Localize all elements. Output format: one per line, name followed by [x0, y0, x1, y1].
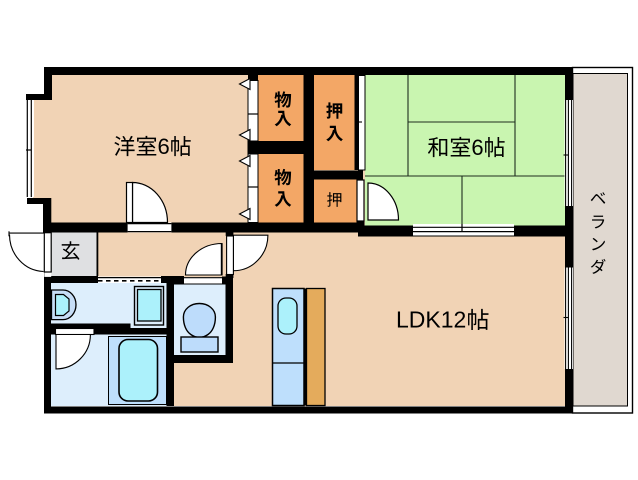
svg-text:6: 6 [158, 134, 170, 159]
svg-text:LDK12: LDK12 [396, 307, 466, 333]
svg-text:6: 6 [471, 135, 483, 160]
